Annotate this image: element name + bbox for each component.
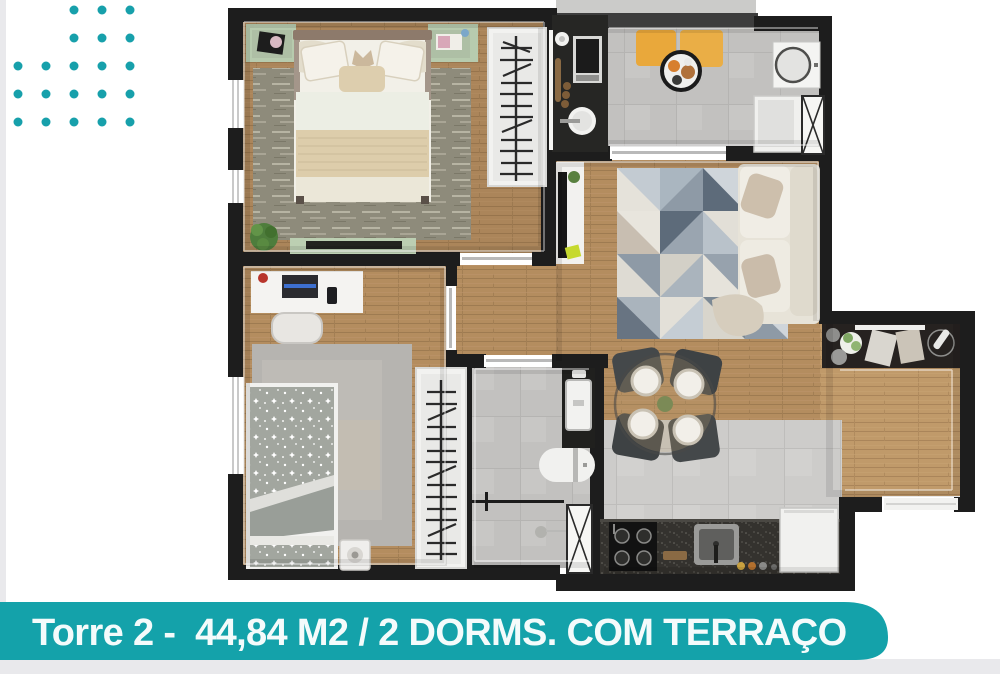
svg-text:Torre 2 - 44,84 M2 / 2 DORMS.: Torre 2 - 44,84 M2 / 2 DORMS. COM TERRAÇ… (32, 612, 847, 654)
